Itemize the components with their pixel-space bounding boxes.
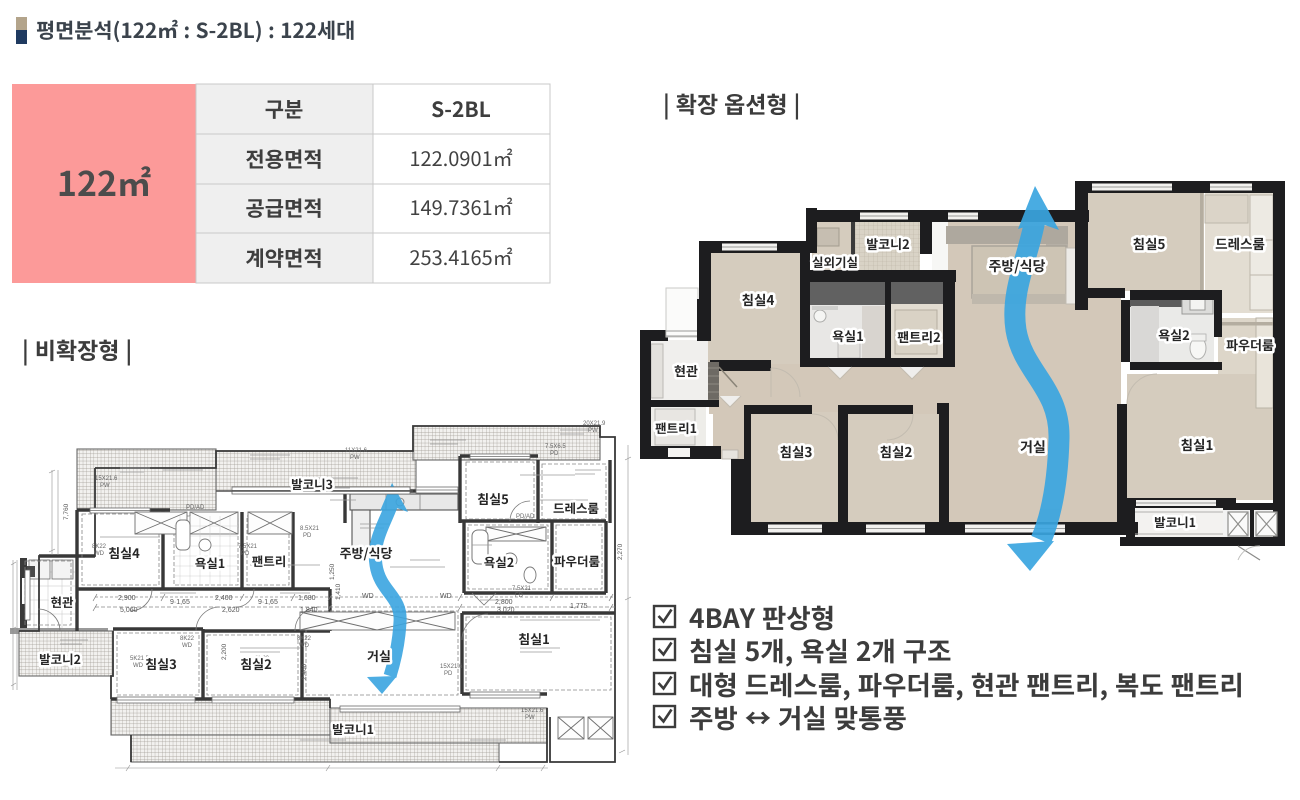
svg-text:WD: WD bbox=[440, 593, 452, 600]
svg-text:WD: WD bbox=[94, 551, 105, 557]
svg-text:PD: PD bbox=[550, 451, 559, 457]
svg-text:FD: FD bbox=[515, 593, 524, 599]
svg-text:15X21.6: 15X21.6 bbox=[440, 664, 463, 670]
svg-text:WD: WD bbox=[362, 593, 374, 600]
svg-text:9·1,65: 9·1,65 bbox=[170, 599, 190, 606]
svg-text:7,760: 7,760 bbox=[63, 503, 70, 520]
svg-text:PD: PD bbox=[444, 671, 453, 677]
svg-text:1,410: 1,410 bbox=[335, 583, 342, 600]
svg-text:PW: PW bbox=[100, 483, 110, 489]
svg-text:PD: PD bbox=[303, 533, 312, 539]
svg-text:2,200: 2,200 bbox=[221, 643, 228, 660]
svg-text:WD: WD bbox=[182, 643, 193, 649]
svg-text:PD: PD bbox=[241, 551, 250, 557]
svg-text:7.5X21: 7.5X21 bbox=[512, 586, 532, 592]
svg-text:8K22: 8K22 bbox=[180, 636, 195, 642]
svg-text:2,620: 2,620 bbox=[222, 607, 240, 614]
svg-text:20X21.9: 20X21.9 bbox=[583, 421, 606, 427]
svg-text:7.5X21: 7.5X21 bbox=[238, 544, 258, 550]
svg-text:PW: PW bbox=[350, 455, 360, 461]
svg-text:3,020: 3,020 bbox=[497, 607, 515, 614]
svg-text:PD/AD: PD/AD bbox=[186, 505, 205, 511]
svg-text:PW: PW bbox=[525, 715, 535, 721]
svg-text:2,460: 2,460 bbox=[301, 663, 308, 680]
svg-text:2,900: 2,900 bbox=[118, 595, 136, 602]
svg-text:2,270: 2,270 bbox=[617, 543, 624, 560]
svg-text:15X21.6: 15X21.6 bbox=[95, 476, 118, 482]
svg-text:9·1,65: 9·1,65 bbox=[258, 599, 278, 606]
svg-text:WD: WD bbox=[299, 643, 310, 649]
svg-text:8K22: 8K22 bbox=[92, 544, 107, 550]
svg-text:WD: WD bbox=[133, 663, 144, 669]
svg-text:PW: PW bbox=[588, 428, 598, 434]
svg-text:PD/AD: PD/AD bbox=[516, 514, 535, 520]
svg-text:1,250: 1,250 bbox=[329, 563, 336, 580]
svg-text:15X21.6: 15X21.6 bbox=[521, 708, 544, 714]
svg-text:8.5X21: 8.5X21 bbox=[300, 526, 320, 532]
svg-text:1,680: 1,680 bbox=[298, 595, 316, 602]
svg-text:2,400: 2,400 bbox=[215, 595, 233, 602]
svg-text:1,775: 1,775 bbox=[570, 603, 588, 610]
svg-text:5,060: 5,060 bbox=[120, 607, 138, 614]
svg-text:11X21.6: 11X21.6 bbox=[345, 448, 368, 454]
svg-text:7.5X6.5: 7.5X6.5 bbox=[545, 444, 566, 450]
svg-text:8K22: 8K22 bbox=[297, 636, 312, 642]
svg-text:1,840: 1,840 bbox=[300, 607, 318, 614]
